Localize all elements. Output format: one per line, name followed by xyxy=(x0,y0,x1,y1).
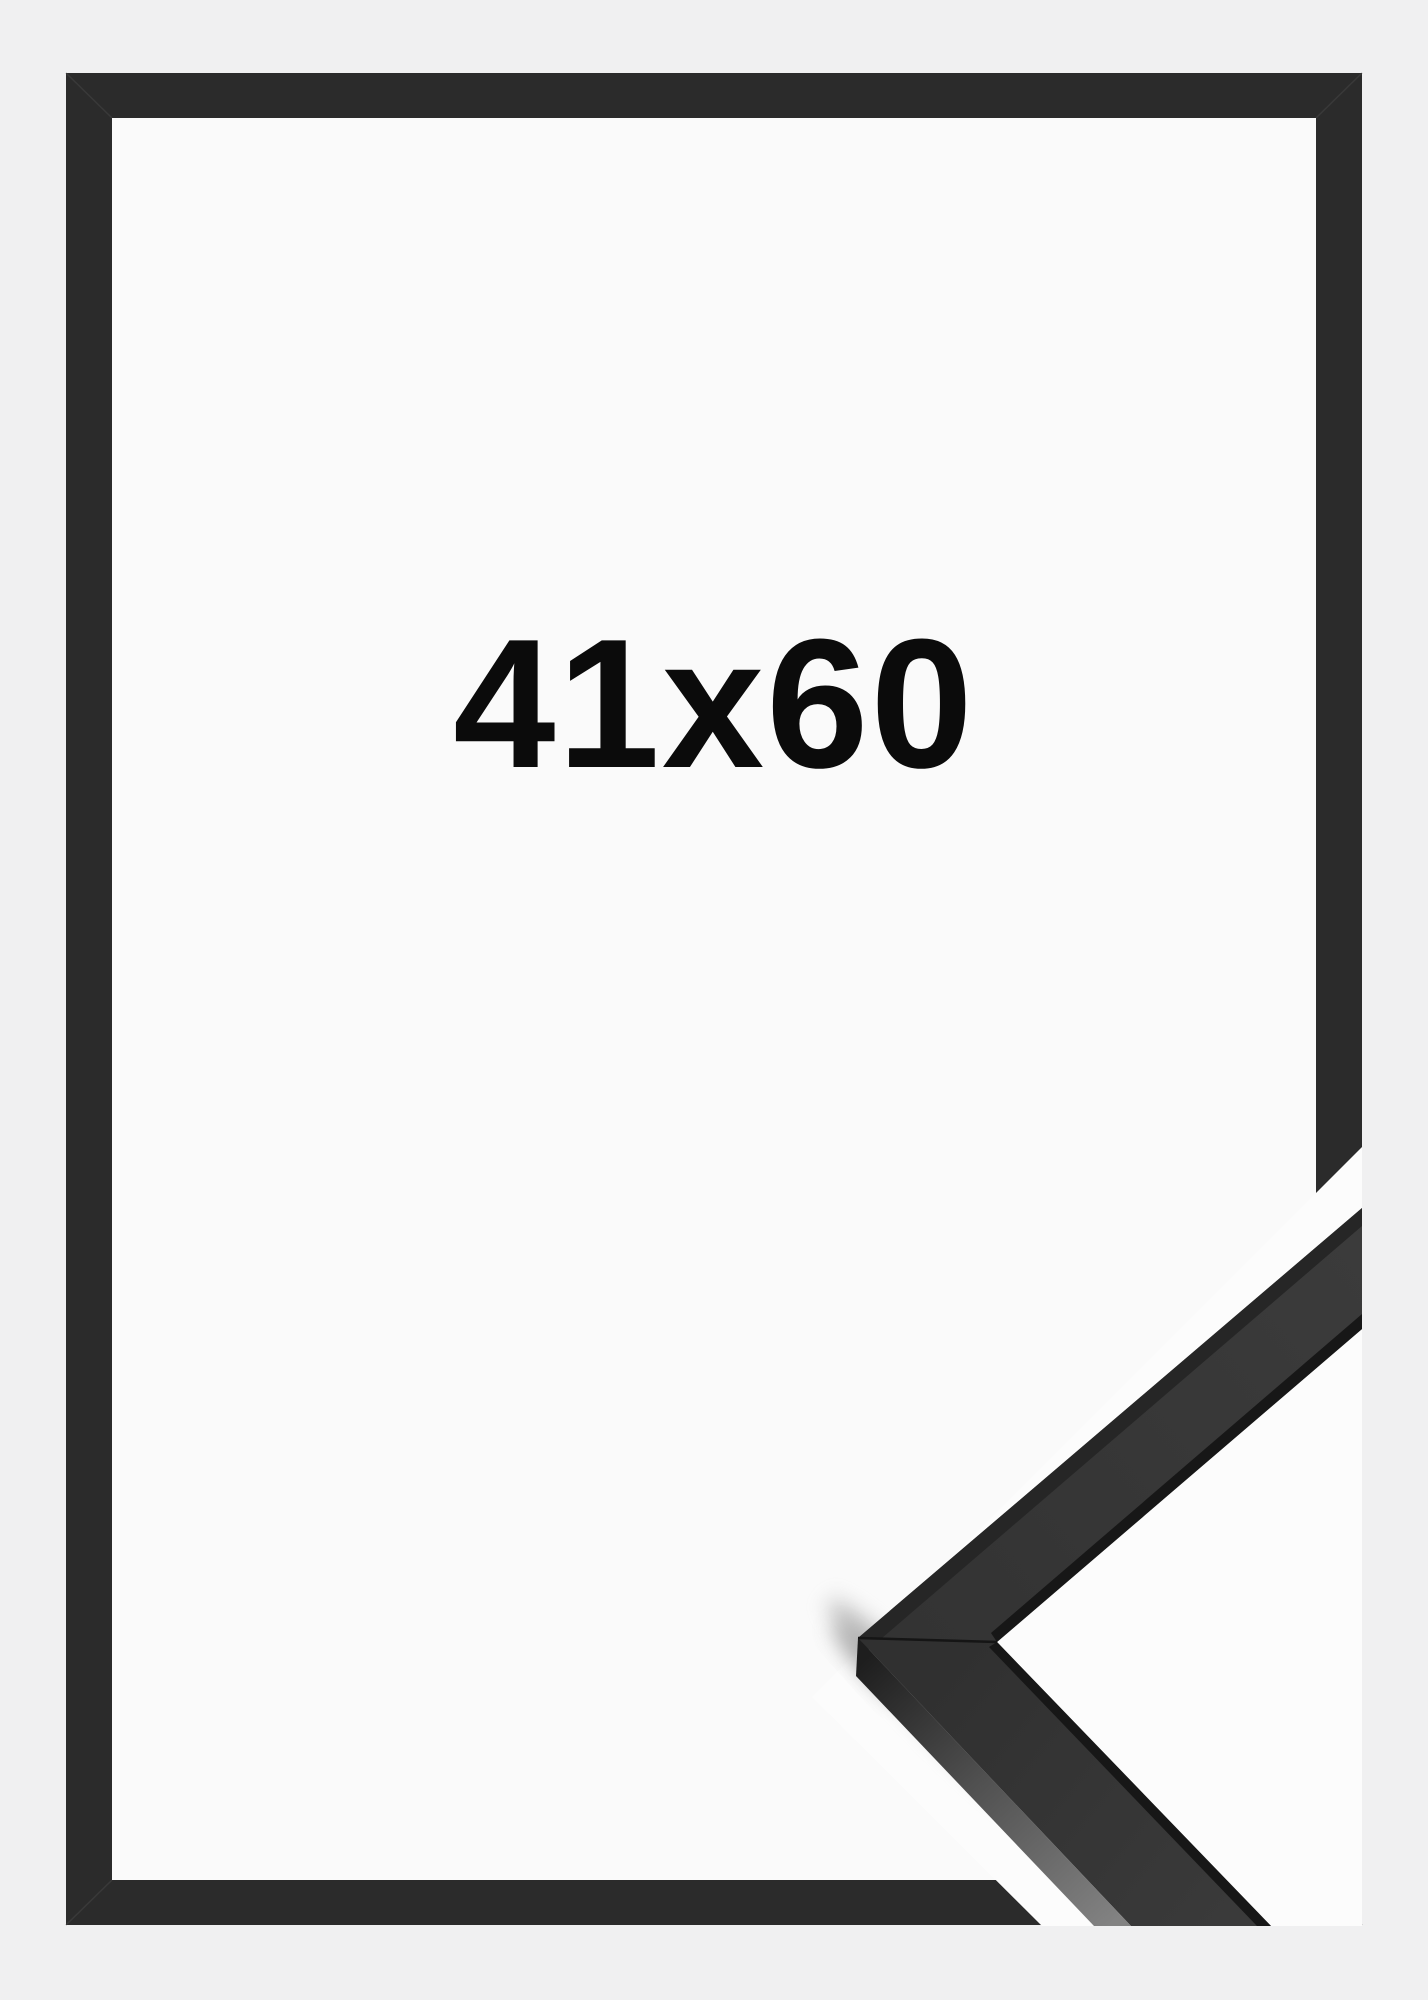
size-label: 41x60 xyxy=(453,600,975,806)
product-image-canvas: 41x60 xyxy=(0,0,1428,2000)
product-image: 41x60 xyxy=(0,0,1428,2000)
